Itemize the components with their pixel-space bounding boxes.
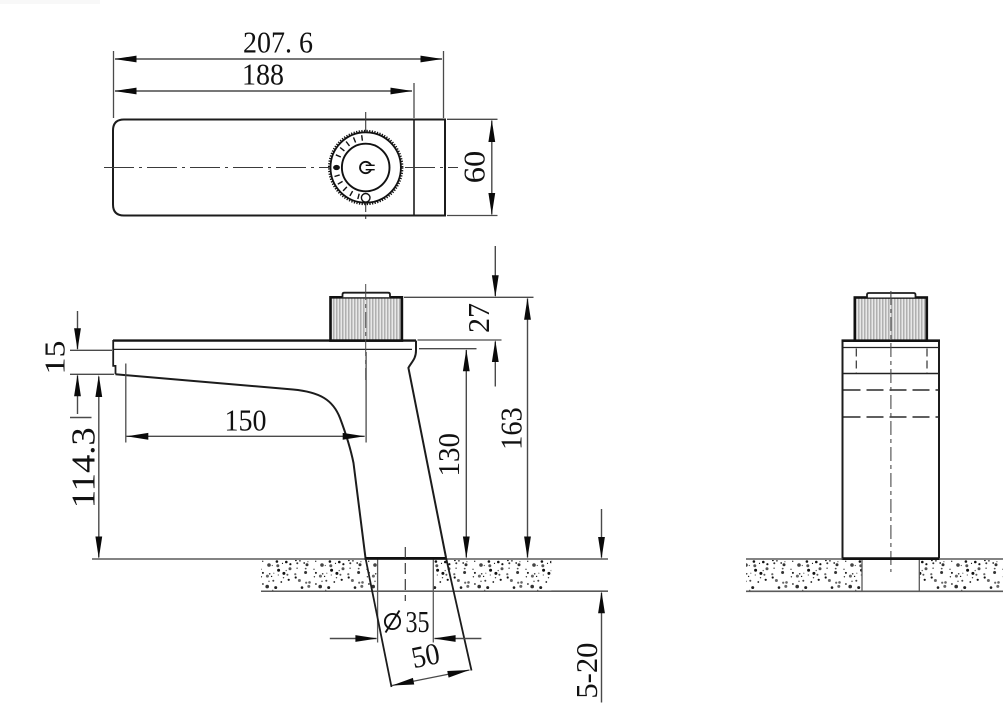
svg-text:114.3: 114.3 [66,427,103,508]
svg-text:35: 35 [406,605,430,639]
svg-text:188: 188 [242,58,284,92]
svg-text:207. 6: 207. 6 [243,26,313,60]
svg-text:15: 15 [41,341,72,375]
svg-text:130: 130 [432,433,466,477]
svg-text:5-20: 5-20 [570,643,604,699]
svg-text:163: 163 [495,407,529,450]
svg-text:150: 150 [225,404,267,438]
svg-text:50: 50 [408,636,442,675]
svg-text:27: 27 [462,303,496,333]
svg-text:60: 60 [458,151,492,184]
